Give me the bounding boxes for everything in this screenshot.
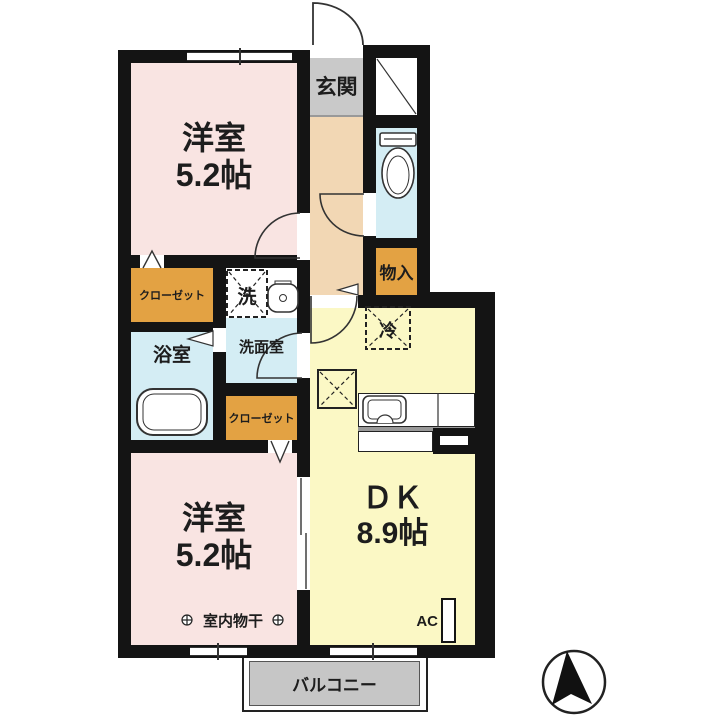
door-gap-dk: [310, 295, 358, 308]
closet-top-label: クローゼット: [131, 287, 213, 303]
sliding-door-gap: [297, 477, 310, 590]
entrance-step-line: [310, 115, 363, 117]
entrance-niche: [376, 58, 417, 115]
door-gap-closet-bottom: [268, 440, 292, 453]
kitchen-counter: [358, 393, 475, 427]
bathroom-label: 浴室: [131, 340, 213, 367]
dk-name: ＤＫ: [310, 482, 475, 517]
washer-label: 洗: [227, 282, 267, 309]
bedroom-top-label: 洋室 5.2帖: [131, 120, 297, 194]
kitchen-wall-niche: [440, 436, 468, 445]
bedroom-top-name: 洋室: [131, 120, 297, 157]
room-hallway: [310, 117, 363, 295]
dk-label: ＤＫ 8.9帖: [310, 482, 475, 551]
door-gap-entrance: [310, 45, 363, 58]
compass-north-arrow-icon: [543, 651, 605, 713]
room-toilet: [376, 128, 417, 238]
washroom-label: 洗面室: [226, 336, 297, 357]
fridge-label: 冷: [366, 317, 410, 343]
kitchen-lower-cabinet: [358, 431, 433, 452]
dk-size: 8.9帖: [310, 517, 475, 552]
ac-label: AC: [400, 613, 438, 630]
door-gap-bathroom: [213, 328, 226, 352]
indoor-drying-label: 室内物干: [193, 610, 273, 631]
door-gap-bedroom-top: [297, 213, 310, 260]
bedroom-bottom-label: 洋室 5.2帖: [131, 500, 297, 574]
door-gap-washroom: [297, 333, 310, 378]
bedroom-bottom-name: 洋室: [131, 500, 297, 537]
room-dk: [310, 308, 475, 645]
door-gap-closet-top: [140, 255, 164, 268]
balcony-label: バルコニー: [249, 671, 420, 696]
entrance-label: 玄関: [310, 71, 363, 101]
entrance-door-arc: [313, 3, 363, 45]
ac-unit: [441, 598, 456, 643]
door-gap-toilet: [363, 193, 376, 236]
closet-bottom-label: クローゼット: [226, 410, 297, 426]
bedroom-top-size: 5.2帖: [131, 157, 297, 194]
floorplan-canvas: 洋室 5.2帖 洋室 5.2帖 ＤＫ 8.9帖 玄関 物入 洗面室 浴室 クロー…: [0, 0, 720, 720]
storage-label: 物入: [376, 259, 417, 284]
bedroom-bottom-size: 5.2帖: [131, 537, 297, 574]
